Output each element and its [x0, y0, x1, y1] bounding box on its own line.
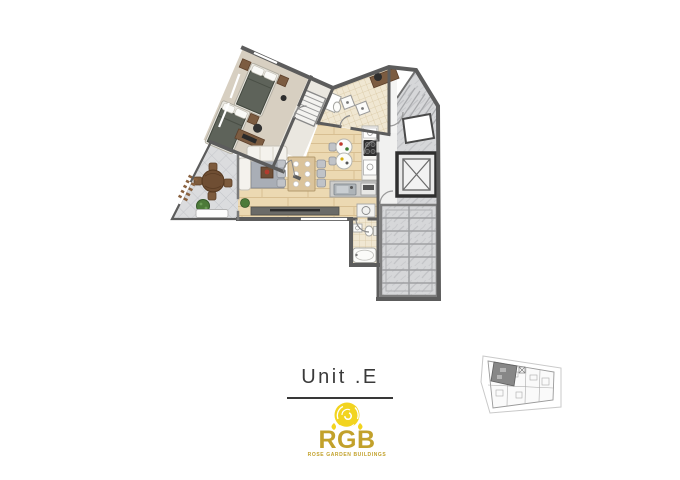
chair	[317, 160, 326, 168]
corridor	[378, 133, 397, 204]
title-underline	[287, 397, 393, 399]
floor-plan-sheet: Unit .E RGB ROSE GARDEN BUILDINGS	[0, 0, 680, 480]
dining-set	[277, 157, 326, 191]
brand-logo: RGB ROSE GARDEN BUILDINGS	[296, 401, 398, 458]
washing-machine	[357, 204, 375, 217]
chair	[317, 170, 326, 178]
key-plan	[476, 348, 568, 424]
lower-stairs	[381, 205, 437, 296]
chair	[317, 179, 326, 187]
terrace-chair	[224, 179, 232, 187]
table-deco	[265, 170, 270, 175]
mini-elevator	[519, 367, 525, 373]
unit-title: Unit .E	[270, 366, 410, 389]
terrace-chair	[208, 192, 216, 200]
brand-tagline: ROSE GARDEN BUILDINGS	[296, 452, 398, 458]
chair	[329, 143, 336, 151]
brand-name: RGB	[296, 430, 398, 451]
plant	[241, 199, 250, 208]
armchair	[239, 158, 251, 190]
chair	[277, 179, 286, 187]
stair-void	[403, 114, 434, 143]
toilet	[365, 226, 373, 236]
elevator	[397, 153, 436, 196]
oven	[364, 160, 377, 175]
highlight-detail	[497, 375, 502, 379]
chair	[329, 157, 336, 165]
toilet	[333, 102, 340, 112]
planter	[196, 210, 228, 218]
highlight-detail	[500, 368, 506, 372]
round-table	[336, 153, 352, 169]
